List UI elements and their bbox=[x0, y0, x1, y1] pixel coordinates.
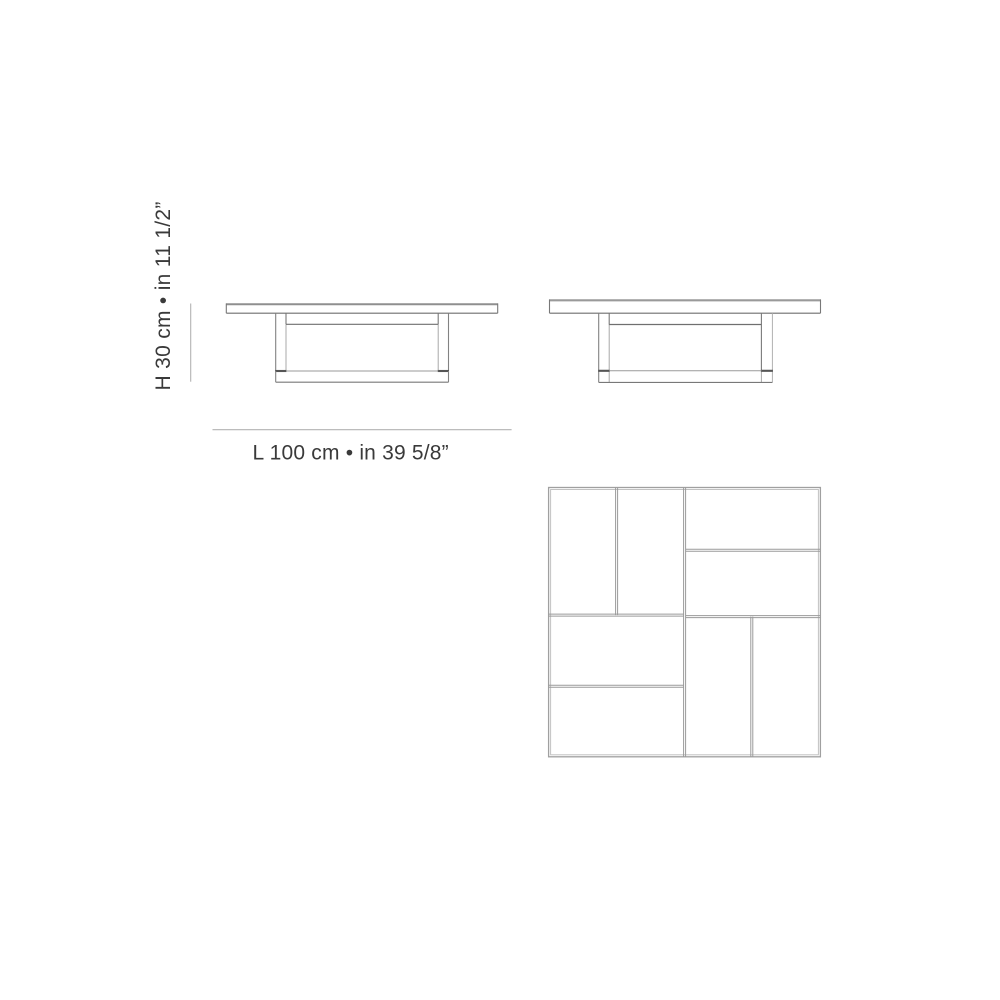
svg-text:H 30 cm • in 11 1/2”: H 30 cm • in 11 1/2” bbox=[152, 201, 175, 390]
svg-text:L 100 cm • in 39 5/8”: L 100 cm • in 39 5/8” bbox=[253, 442, 449, 465]
